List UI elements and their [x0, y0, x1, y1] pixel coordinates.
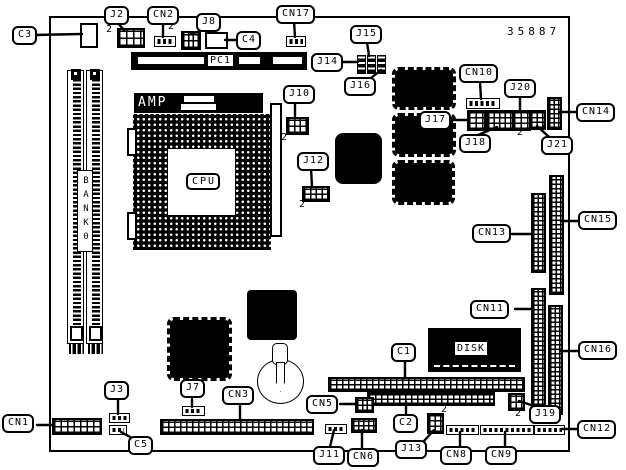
label-j12: J12: [297, 152, 329, 171]
pin2-marker-j19: 2: [515, 408, 521, 419]
label-cn6: CN6: [347, 448, 379, 467]
pin2-marker-j13: 2: [441, 404, 447, 415]
label-j8: J8: [196, 13, 221, 32]
label-cn17: CN17: [276, 5, 315, 24]
label-j2: J2: [104, 6, 129, 25]
motherboard-diagram: 35887 BANK0 PC1 AMP CPU DISK: [0, 0, 626, 470]
label-j11: J11: [313, 446, 345, 465]
label-j14: J14: [311, 53, 343, 72]
label-j10: J10: [283, 85, 315, 104]
label-c3: C3: [12, 26, 37, 45]
label-cn2: CN2: [147, 6, 179, 25]
pin2-marker-j12: 2: [299, 199, 305, 210]
label-cn10: CN10: [459, 64, 498, 83]
label-c1: C1: [391, 343, 416, 362]
label-c2: C2: [393, 414, 418, 433]
label-cn5: CN5: [306, 395, 338, 414]
label-cn16: CN16: [578, 341, 617, 360]
label-c4: C4: [236, 31, 261, 50]
label-cn14: CN14: [576, 103, 615, 122]
pin2-marker-j20: 2: [517, 127, 523, 138]
label-cn12: CN12: [577, 420, 616, 439]
label-j18: J18: [459, 134, 491, 153]
label-cn11: CN11: [470, 300, 509, 319]
label-cn8: CN8: [440, 446, 472, 465]
label-j3: J3: [104, 381, 129, 400]
pin2-marker-j2: 2: [106, 24, 112, 35]
label-j21: J21: [541, 136, 573, 155]
label-cn15: CN15: [578, 211, 617, 230]
label-j17: J17: [419, 111, 451, 130]
label-cn9: CN9: [485, 446, 517, 465]
label-j19: J19: [529, 405, 561, 424]
label-cn3: CN3: [222, 386, 254, 405]
label-cn13: CN13: [472, 224, 511, 243]
label-c5: C5: [128, 436, 153, 455]
label-j16: J16: [344, 77, 376, 96]
pin2-marker-j10: 2: [281, 132, 287, 143]
label-j13: J13: [395, 440, 427, 459]
label-j15: J15: [350, 25, 382, 44]
pin2-marker-j21: 2: [540, 121, 546, 132]
label-cn1: CN1: [2, 414, 34, 433]
label-j7: J7: [180, 379, 205, 398]
label-j20: J20: [504, 79, 536, 98]
